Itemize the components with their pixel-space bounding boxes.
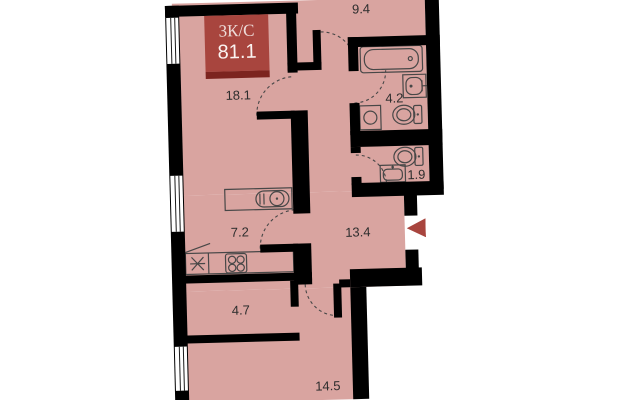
wall-wc-bottom (352, 181, 444, 197)
door-swing-arc (354, 70, 387, 103)
room-area-label: 9.4 (352, 1, 370, 16)
wall-entry-upper (404, 193, 418, 215)
window-icon (175, 347, 188, 391)
wall-bedroom-right (350, 287, 369, 399)
badge-body: 3К/С 81.1 (204, 14, 269, 72)
washing-machine-icon (360, 105, 382, 130)
hob-icon (225, 253, 246, 273)
door-leaf (313, 30, 322, 66)
room-area-label: 18.1 (225, 87, 251, 103)
room-area-label: 13.4 (345, 224, 371, 240)
bathtub-icon (360, 45, 423, 73)
wall-kitchen-right (291, 110, 311, 213)
sink-icon (380, 165, 405, 183)
room-area-label: 1.9 (407, 167, 425, 182)
wall-bath-divider (350, 129, 442, 147)
wall-bath-left-upper (348, 37, 359, 71)
sink-icon (403, 74, 428, 98)
kitchen-sink-icon (225, 188, 293, 211)
door-leaf (333, 283, 342, 317)
wall-wc-left-lower (351, 177, 361, 185)
fridge-star-icon (190, 257, 205, 270)
room-area-label: 4.7 (232, 302, 250, 317)
room-area-label: 4.2 (385, 90, 403, 105)
apartment-floor-plan: 3К/С 81.1 9.4 18.1 4.2 1.9 7.2 13.4 4.7 … (0, 0, 640, 400)
floor-plan-canvas: 3К/С 81.1 9.4 18.1 4.2 1.9 7.2 13.4 4.7 … (0, 0, 640, 400)
toilet-icon (394, 147, 423, 167)
wall-storage-right (290, 281, 299, 307)
toilet-icon (393, 105, 422, 125)
window-icon (166, 18, 179, 64)
wall-wc-left-upper (351, 147, 361, 153)
door-leaf (257, 111, 295, 120)
wall-corridor-bottom (350, 267, 422, 287)
apartment-total-area: 81.1 (217, 40, 257, 64)
room-area-label: 7.2 (231, 224, 249, 239)
window-icon (170, 176, 183, 232)
apartment-type-label: 3К/С (218, 22, 254, 42)
room-area-label: 14.5 (315, 378, 341, 394)
apartment-badge: 3К/С 81.1 (204, 14, 270, 79)
